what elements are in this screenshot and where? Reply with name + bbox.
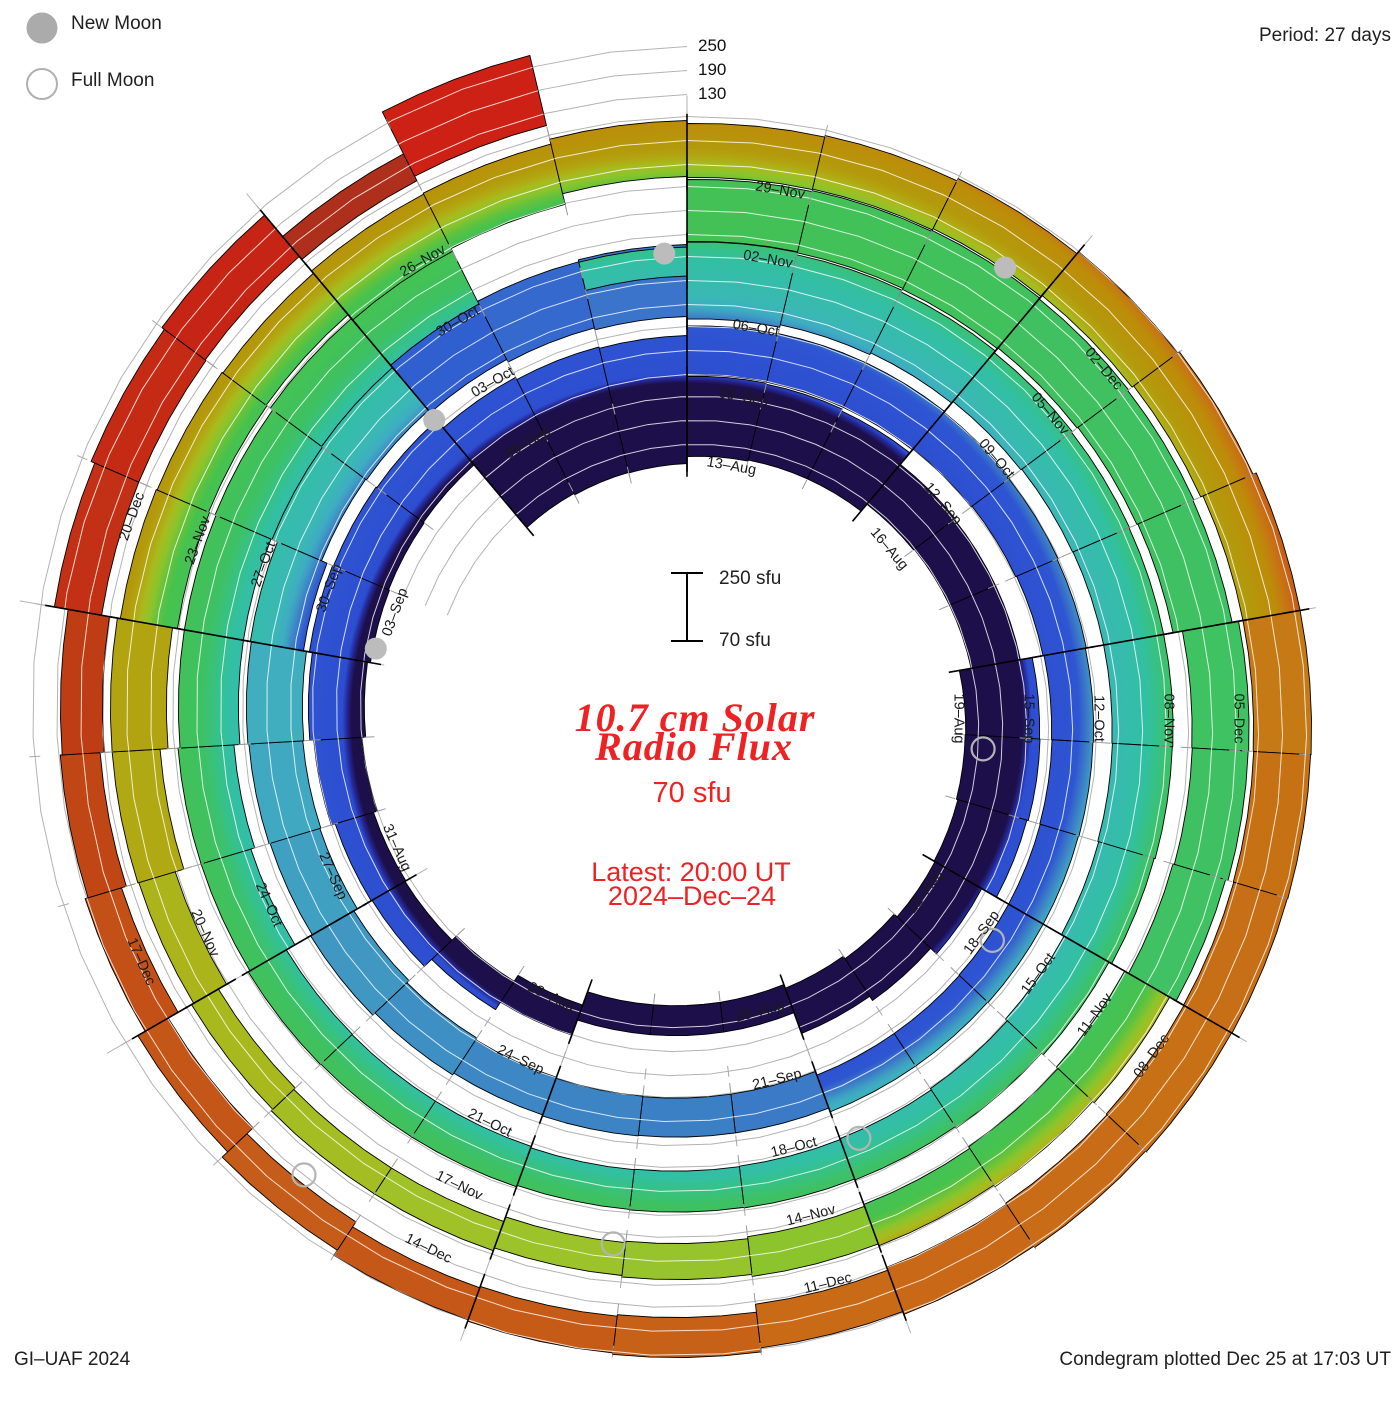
svg-text:130: 130 <box>698 84 726 103</box>
svg-text:190: 190 <box>698 60 726 79</box>
svg-text:New Moon: New Moon <box>71 13 162 34</box>
svg-text:15–Sep: 15–Sep <box>1021 694 1037 744</box>
svg-text:250 sfu: 250 sfu <box>719 568 781 589</box>
svg-text:Radio Flux: Radio Flux <box>594 724 793 769</box>
svg-text:GI–UAF 2024: GI–UAF 2024 <box>14 1349 131 1370</box>
svg-text:250: 250 <box>698 36 726 55</box>
svg-text:05–Dec: 05–Dec <box>1231 694 1247 744</box>
svg-text:Full Moon: Full Moon <box>71 70 154 91</box>
svg-text:12–Oct: 12–Oct <box>1091 695 1107 742</box>
svg-text:Period: 27 days: Period: 27 days <box>1259 25 1391 46</box>
svg-text:2024–Dec–24: 2024–Dec–24 <box>608 881 776 911</box>
svg-text:70 sfu: 70 sfu <box>653 777 732 809</box>
svg-text:Condegram plotted Dec 25 at 17: Condegram plotted Dec 25 at 17:03 UT <box>1059 1349 1391 1370</box>
svg-text:70 sfu: 70 sfu <box>719 630 771 651</box>
svg-text:08–Nov: 08–Nov <box>1161 694 1177 745</box>
svg-text:19–Aug: 19–Aug <box>951 694 967 744</box>
